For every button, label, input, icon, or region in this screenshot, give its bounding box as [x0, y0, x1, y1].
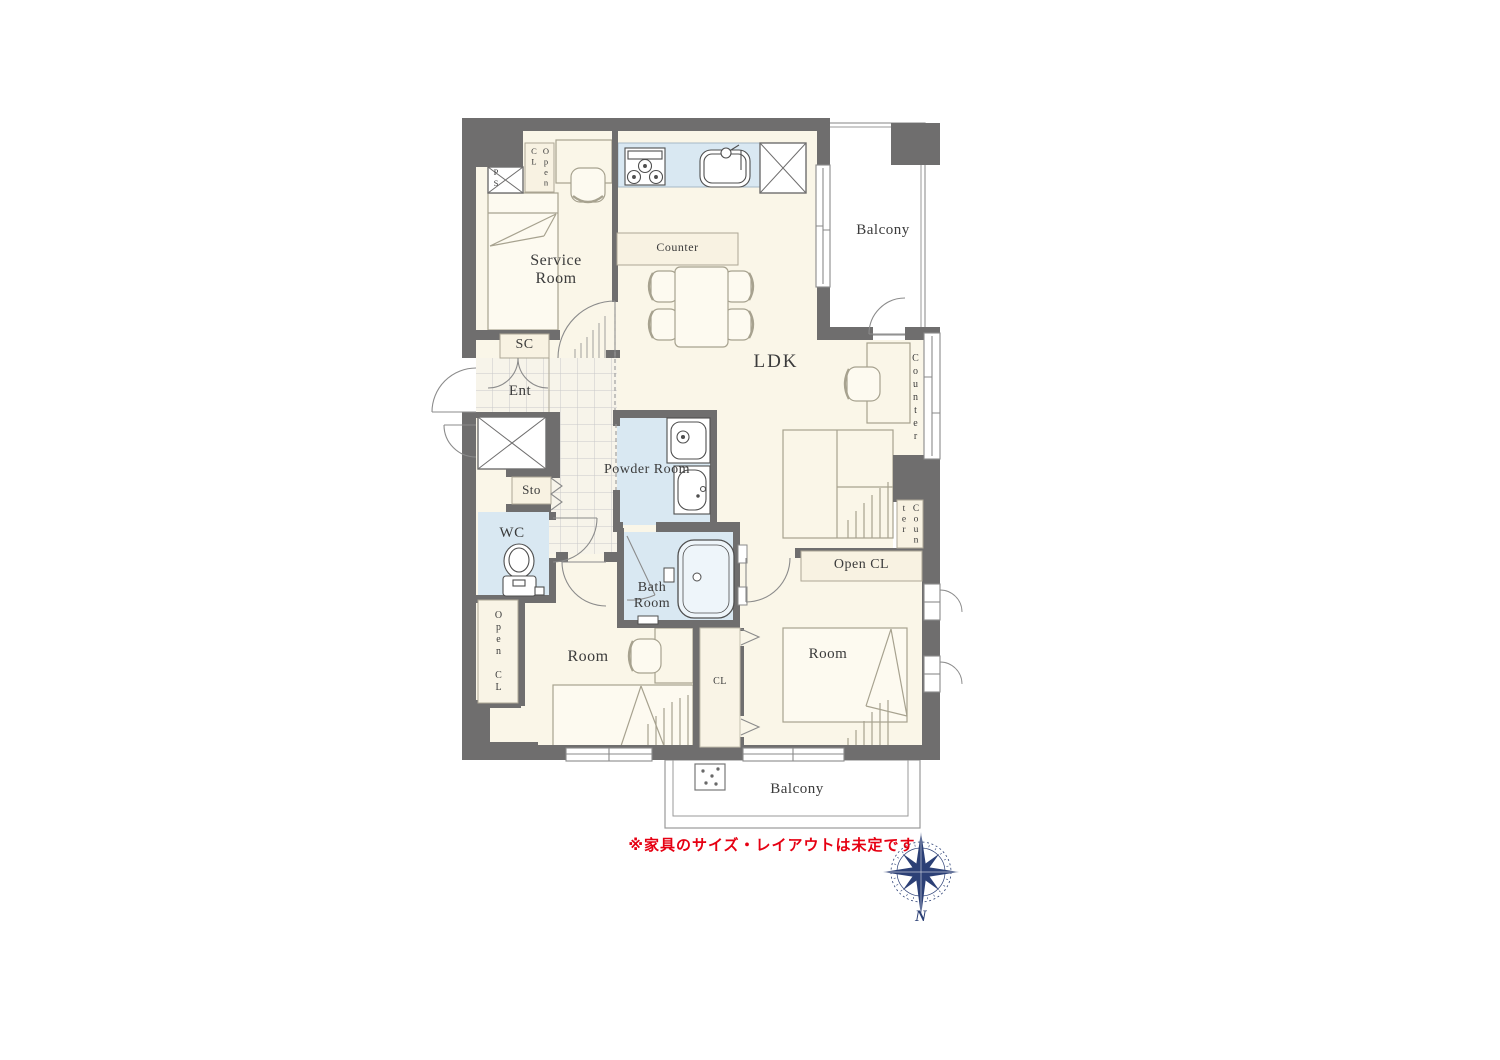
label-wc: WC — [489, 525, 535, 542]
stove — [625, 148, 665, 185]
label-balcony-bottom: Balcony — [757, 781, 837, 798]
label-powder-room: Powder Room — [604, 462, 690, 478]
bed-room-left — [553, 685, 693, 747]
window-ldk-balcony — [816, 165, 830, 287]
compass-north-label: N — [906, 908, 936, 926]
label-sto: Sto — [512, 483, 551, 498]
dining-table — [675, 267, 728, 347]
kitchen-sink — [700, 145, 750, 187]
entrance-storage — [478, 417, 546, 469]
label-counter-window: Counter — [909, 353, 921, 435]
label-room-left: Room — [548, 648, 628, 666]
window-room-right-1 — [924, 584, 940, 620]
chair-room-left — [629, 639, 661, 673]
bath-counter — [638, 616, 658, 624]
cl-strip — [700, 628, 740, 747]
entrance-door — [432, 368, 476, 412]
washing-machine — [667, 418, 710, 463]
window-room-right-bottom — [743, 748, 844, 761]
label-counter-lower: Counter — [899, 504, 922, 548]
label-service-room: Service Room — [512, 252, 600, 288]
label-counter-island: Counter — [617, 241, 738, 254]
label-sc: SC — [500, 337, 549, 353]
refrigerator-space — [760, 143, 806, 193]
floor-plan: Balcony Service Room PS Open CL Counter … — [0, 0, 1500, 1060]
label-cl: CL — [700, 676, 740, 687]
furniture-disclaimer-note: ※家具のサイズ・レイアウトは未定です — [572, 838, 972, 855]
window-room-right-2 — [924, 656, 940, 692]
window-room-left-bottom — [566, 748, 652, 761]
label-open-cl-left: Open CL — [492, 610, 504, 704]
label-ps: PS — [490, 167, 502, 193]
casement-window-arcs — [940, 590, 962, 684]
chair-counter — [845, 367, 880, 401]
bathtub — [678, 540, 734, 618]
label-open-cl-right: Open CL — [801, 557, 922, 573]
window-counter-nook — [924, 333, 940, 459]
floor-plan-drawing — [0, 0, 1500, 1060]
chair-service-room — [571, 168, 605, 202]
label-ldk: LDK — [746, 351, 806, 372]
label-balcony-top: Balcony — [843, 222, 923, 239]
label-room-right: Room — [788, 646, 868, 663]
label-open-cl-top: Open CL — [528, 146, 552, 192]
evacuation-hatch — [695, 764, 725, 790]
label-bath-room: Bath Room — [621, 580, 683, 611]
label-ent: Ent — [494, 383, 546, 400]
